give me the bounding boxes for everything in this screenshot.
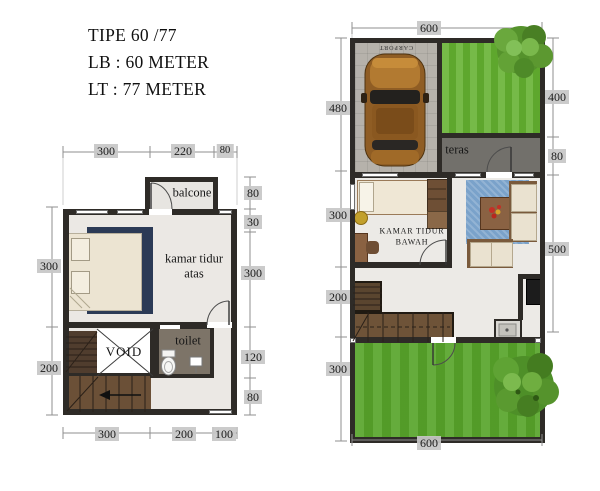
wall: [350, 38, 545, 43]
dim-chip: 100: [212, 427, 236, 441]
stairs-lower-flight: [66, 376, 151, 413]
dim-chip: 220: [171, 144, 195, 158]
plan-lt-line: LT : 77 METER: [88, 76, 209, 103]
window: [219, 210, 232, 214]
dim-chip: 600: [417, 21, 441, 35]
toilet-label: toilet: [175, 334, 201, 349]
column-marker: [350, 338, 356, 343]
carport-area: [355, 43, 437, 174]
wall: [350, 437, 545, 443]
wall: [231, 209, 237, 415]
stairs-upper-flight: [353, 281, 382, 312]
teras-label: teras: [445, 143, 469, 158]
pillow: [71, 271, 90, 294]
window: [117, 210, 143, 214]
coffee-table: [480, 197, 511, 230]
dim-chip: 400: [545, 90, 569, 104]
sofa-cushion: [511, 213, 537, 241]
dim-chip: 480: [326, 101, 350, 115]
plan-lb-line: LB : 60 METER: [88, 49, 209, 76]
window: [350, 184, 355, 210]
wall: [447, 178, 452, 268]
column-marker: [535, 338, 541, 343]
wall: [518, 274, 523, 320]
plan-type-title: TIPE 60 /77: [88, 22, 209, 49]
sofa-cushion: [470, 242, 492, 267]
wall: [350, 262, 452, 268]
dim-chip: 200: [326, 290, 350, 304]
dim-chip: 80: [244, 390, 262, 404]
front-lawn: [442, 43, 540, 133]
toilet-door-gap: [160, 325, 180, 329]
balcony-label: balcone: [173, 186, 212, 201]
wall: [66, 373, 151, 376]
chair: [366, 241, 379, 254]
sofa-cushion: [491, 242, 513, 267]
wall: [437, 38, 442, 177]
carport-label: CARPORT: [379, 44, 413, 50]
dim-chip: 300: [241, 266, 265, 280]
sofa-cushion: [511, 184, 537, 212]
dim-chip: 200: [37, 361, 61, 375]
bedroom-door-gap: [207, 322, 232, 328]
window: [76, 210, 108, 214]
window: [362, 173, 398, 177]
balcony-wall: [213, 177, 218, 213]
bedroom-atas-label-line1: kamar tidur: [165, 252, 223, 267]
balcony-wall: [145, 177, 150, 213]
pillow: [71, 238, 90, 261]
dim-chip: 80: [217, 144, 234, 158]
bedroom-atas-label-line2: atas: [184, 267, 203, 282]
wall: [150, 326, 155, 378]
plan-title-block: TIPE 60 /77 LB : 60 METER LT : 77 METER: [88, 22, 209, 103]
void-label: VOID: [106, 344, 143, 360]
dim-chip: 600: [417, 436, 441, 450]
dim-chip: 300: [94, 144, 118, 158]
dim-chip: 500: [545, 242, 569, 256]
back-garden: [355, 343, 540, 437]
wall: [437, 133, 540, 138]
dim-chip: 300: [95, 427, 119, 441]
window: [514, 173, 534, 177]
wardrobe: [427, 179, 449, 212]
bedroom-bawah-label-line2: BAWAH: [396, 238, 429, 247]
wall: [350, 38, 355, 443]
window: [455, 173, 481, 177]
window: [209, 410, 232, 414]
garden-door-gap: [431, 337, 456, 343]
dim-chip: 300: [37, 259, 61, 273]
wall: [63, 209, 69, 415]
dim-chip: 80: [244, 186, 262, 200]
teras-door-gap: [486, 172, 512, 178]
floorplan-canvas: TIPE 60 /77 LB : 60 METER LT : 77 METER: [0, 0, 600, 491]
balcony-wall: [145, 177, 218, 182]
dim-chip: 300: [326, 362, 350, 376]
stairs-upper-flight: [66, 331, 97, 376]
dim-chip: 200: [172, 427, 196, 441]
dim-chip: 80: [548, 149, 566, 163]
dim-chip: 300: [326, 208, 350, 222]
dim-chip: 120: [241, 350, 265, 364]
stool: [354, 211, 368, 225]
dim-chip: 30: [244, 215, 262, 229]
balcony-door-gap: [149, 209, 172, 215]
pillow: [359, 182, 374, 212]
bedroom-bawah-label-line1: KAMAR TIDUR: [380, 227, 445, 236]
